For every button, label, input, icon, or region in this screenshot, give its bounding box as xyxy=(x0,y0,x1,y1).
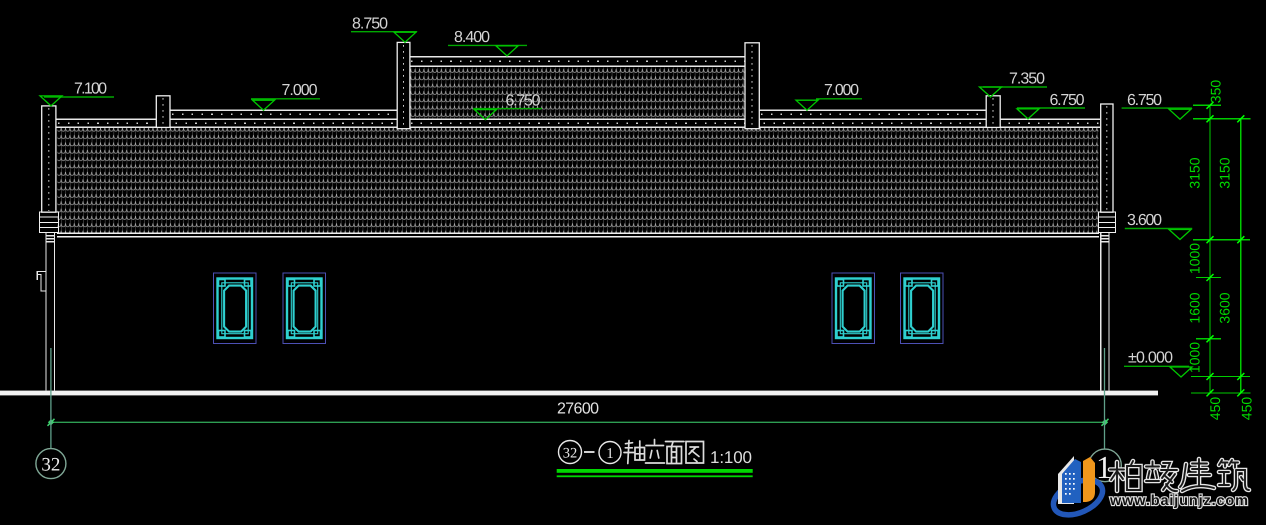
svg-text:7.000: 7.000 xyxy=(824,82,859,99)
svg-text:7.100: 7.100 xyxy=(74,81,107,98)
svg-text:450: 450 xyxy=(1239,397,1255,421)
svg-text:8.400: 8.400 xyxy=(454,29,490,46)
svg-text:6.750: 6.750 xyxy=(506,92,541,109)
svg-text:6.750: 6.750 xyxy=(1127,92,1162,109)
svg-text:8.750: 8.750 xyxy=(352,15,388,32)
svg-text:3.600: 3.600 xyxy=(1127,212,1162,229)
svg-text:1600: 1600 xyxy=(1187,292,1203,323)
svg-text:±0.000: ±0.000 xyxy=(1128,350,1173,367)
svg-text:350: 350 xyxy=(1208,80,1224,104)
svg-text:1:100: 1:100 xyxy=(710,448,752,467)
svg-text:7.350: 7.350 xyxy=(1009,70,1045,87)
svg-text:1000: 1000 xyxy=(1187,342,1203,373)
svg-text:7.000: 7.000 xyxy=(282,82,318,99)
svg-text:450: 450 xyxy=(1207,397,1223,421)
svg-text:1: 1 xyxy=(606,446,614,462)
svg-text:32: 32 xyxy=(41,455,60,476)
svg-text:6.750: 6.750 xyxy=(1050,92,1085,109)
svg-text:27600: 27600 xyxy=(557,401,599,418)
svg-text:3600: 3600 xyxy=(1217,292,1233,323)
svg-text:3150: 3150 xyxy=(1217,157,1233,188)
svg-text:1000: 1000 xyxy=(1187,243,1203,274)
svg-text:3150: 3150 xyxy=(1187,157,1203,188)
svg-text:www.baijunjz.com: www.baijunjz.com xyxy=(1109,493,1248,509)
svg-text:1: 1 xyxy=(1096,449,1112,485)
svg-text:32: 32 xyxy=(563,446,578,462)
